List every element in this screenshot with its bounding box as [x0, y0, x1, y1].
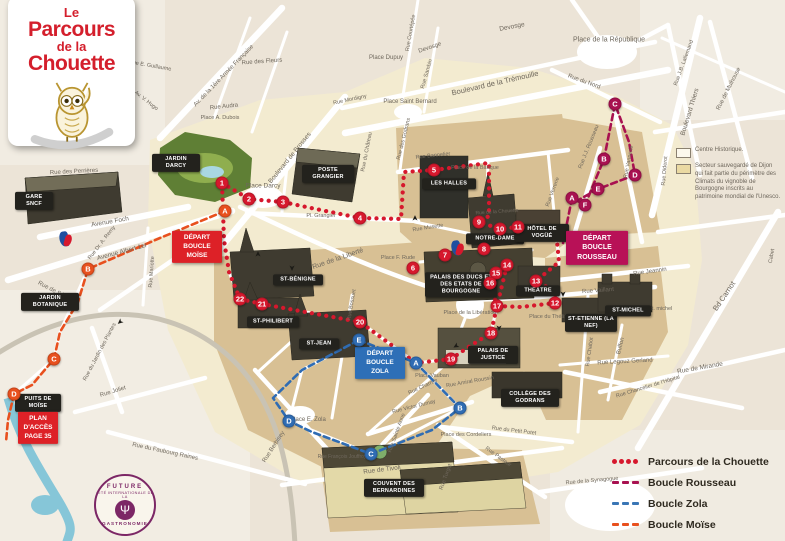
dash-sample-mark	[622, 502, 629, 505]
street-label: Av. de la 1ère Armée Française	[193, 44, 255, 108]
landmark-label: ST-ETIENNE (LA NEF)	[565, 314, 617, 332]
street-label: Rue J.J. Rousseau	[578, 124, 601, 169]
street-label: Rue du Jardin des Plantes	[82, 322, 118, 382]
gastronomie-stamp: FUTURE CITÉ INTERNATIONALE DE LA Ψ GASTR…	[94, 474, 156, 536]
street-label: Rue des Godrans	[396, 117, 412, 160]
moise-route-label: Boucle Moïse	[648, 519, 716, 531]
waypoint-chouette-22: 22	[234, 293, 247, 306]
landmark-label: LES HALLES	[422, 178, 476, 189]
waypoint-chouette-3: 3	[277, 196, 290, 209]
dash-sample-mark	[632, 502, 639, 505]
waypoint-rousseau-F: F	[579, 199, 592, 212]
street-label: Cabet	[768, 248, 776, 264]
zola-route-label: Boucle Zola	[648, 498, 708, 510]
street-label: Rue du Faubourg Raines	[132, 442, 199, 462]
route-start-box: Plan d'accès page 35	[18, 412, 58, 444]
waypoint-chouette-12: 12	[549, 297, 562, 310]
street-label: Rue François Jouffroy	[318, 454, 367, 460]
street-label: Rue de Mulhouse	[716, 67, 743, 112]
landmark-label: POSTE GRANGIER	[302, 165, 354, 183]
street-label: Rue des Perrières	[50, 168, 99, 177]
dot-sample-mark	[626, 459, 631, 464]
street-label: Rue de la Liberté	[312, 247, 365, 271]
street-label: Rue Mariotte	[148, 256, 156, 288]
street-label: Boulevard Thiers	[679, 88, 700, 137]
street-label: Devosge	[418, 41, 442, 54]
route-start-box: DÉPART BOUCLE MOÏSE	[172, 231, 222, 263]
waypoint-chouette-20: 20	[354, 316, 367, 329]
street-label: Buffon	[616, 337, 626, 355]
landmark-label: COUVENT DES BERNARDINES	[364, 479, 424, 497]
dash-sample-mark	[632, 481, 639, 484]
waypoint-chouette-8: 8	[478, 243, 491, 256]
legend-boucle-moise: Boucle Moïse	[612, 514, 769, 535]
landmark-label: PUITS DE MOÏSE	[15, 394, 61, 412]
waypoint-chouette-1: 1	[216, 177, 229, 190]
street-label: Rue Berbisey	[262, 430, 287, 463]
street-label: Rue Courtépée	[405, 14, 417, 52]
secteur-sauvegarde-label: Secteur sauvegardé de Dijon qui fait par…	[695, 163, 782, 202]
street-label: Pl. Grangier	[306, 213, 335, 219]
street-label: Bd Carnot	[711, 279, 737, 312]
direction-arrow-icon: ➤	[411, 215, 420, 222]
waypoint-chouette-4: 4	[354, 212, 367, 225]
street-label: Rue Audra	[210, 103, 239, 112]
waypoint-chouette-10: 10	[494, 223, 507, 236]
street-label: Devosge	[499, 21, 526, 33]
centre-historique-swatch	[676, 148, 691, 158]
landmark-label: PALAIS DE JUSTICE	[468, 346, 518, 364]
street-label: Rue Jeannin	[633, 267, 667, 278]
street-label: Rue des Fleurs	[241, 58, 282, 67]
street-label: Rue Pasteur	[484, 446, 512, 469]
street-label: Rue Charrue	[407, 378, 438, 397]
street-label: Rue Bannelier	[415, 151, 450, 161]
waypoint-chouette-7: 7	[439, 249, 452, 262]
waypoint-chouette-14: 14	[501, 259, 514, 272]
waypoint-zola-C: C	[365, 448, 378, 461]
logo-title: Le Parcours de la Chouette	[8, 0, 135, 75]
street-label: Rue Legouz Gerland	[597, 358, 653, 367]
dot-sample-mark	[619, 459, 624, 464]
route-start-box: DÉPART BOUCLE ZOLA	[355, 347, 405, 379]
waypoint-chouette-2: 2	[243, 193, 256, 206]
waypoint-zola-E: E	[353, 334, 366, 347]
dot-sample-mark	[612, 459, 617, 464]
zola-route-sample	[612, 502, 642, 505]
waypoint-moise-D: D	[8, 388, 21, 401]
street-label: Rue Verrerie	[545, 176, 561, 207]
waypoint-chouette-21: 21	[256, 298, 269, 311]
routes-legend: Parcours de la Chouette Boucle Rousseau …	[612, 451, 769, 535]
street-label: Rue Turgot	[439, 463, 454, 491]
street-label: Rue Mordigny	[333, 94, 368, 107]
owl-illustration	[18, 77, 126, 156]
waypoint-chouette-18: 18	[485, 327, 498, 340]
stamp-ring-text: CITÉ INTERNATIONALE DE LA	[96, 491, 154, 499]
legend-boucle-zola: Boucle Zola	[612, 493, 769, 514]
landmark-label: ST-PHILIBERT	[247, 316, 299, 327]
street-label: Place Dupuy	[369, 55, 403, 61]
tourist-office-icon	[60, 232, 73, 249]
street-label: Rue Vaillant	[582, 287, 614, 295]
street-label: Place de la Banque	[451, 165, 499, 171]
street-label: Place Saint Bernard	[383, 99, 436, 105]
waypoint-chouette-6: 6	[407, 262, 420, 275]
waypoint-chouette-13: 13	[530, 275, 543, 288]
waypoint-chouette-9: 9	[473, 216, 486, 229]
legend-secteur-sauvegarde: Secteur sauvegardé de Dijon qui fait par…	[676, 163, 782, 202]
dot-sample-mark	[633, 459, 638, 464]
fork-icon: Ψ	[115, 500, 135, 520]
street-label: Rue Victor Dumay	[392, 399, 437, 416]
direction-arrow-icon: ➤	[288, 265, 297, 272]
dijon-owl-trail-map: Av. de la 1ère Armée FrançaiseBoulevard …	[0, 0, 785, 541]
waypoint-moise-A: A	[219, 205, 232, 218]
waypoint-rousseau-C: C	[609, 98, 622, 111]
street-label: Boulevard de la Trémouille	[451, 69, 540, 98]
stamp-top-text: FUTURE	[107, 484, 143, 490]
legend-boucle-rousseau: Boucle Rousseau	[612, 472, 769, 493]
waypoint-chouette-11: 11	[512, 221, 525, 234]
legend-centre-historique: Centre Historique.	[676, 147, 782, 158]
landmark-label: ST-BÉNIGNE	[273, 274, 323, 285]
landmark-label: ST-JEAN	[299, 338, 339, 349]
dash-sample-mark	[622, 523, 629, 526]
rousseau-route-label: Boucle Rousseau	[648, 477, 736, 489]
street-label: Rue de Mirande	[677, 361, 724, 376]
street-label: Place de la République	[573, 37, 645, 44]
street-label: Rue Amiral Roussin	[446, 375, 495, 389]
street-label: Rue de la Synagogue	[565, 476, 618, 487]
direction-arrow-icon: ➤	[254, 251, 263, 258]
street-label: Rue Musette	[412, 223, 444, 234]
landmark-label: JARDIN BOTANIQUE	[21, 293, 79, 311]
waypoint-rousseau-A: A	[566, 192, 579, 205]
dash-sample-mark	[612, 523, 619, 526]
street-label: Rue du Nord	[567, 73, 601, 90]
secteur-sauvegarde-swatch	[676, 164, 691, 174]
direction-arrow-icon: ➤	[451, 340, 461, 351]
logo-line-chouette: Chouette	[8, 53, 135, 74]
waypoint-zola-D: D	[283, 415, 296, 428]
waypoint-zola-B: B	[454, 402, 467, 415]
chouette-route-label: Parcours de la Chouette	[648, 456, 769, 468]
street-label: Place F. Rude	[381, 255, 415, 261]
street-label: Rue du Château	[360, 132, 374, 172]
stamp-bottom-text: GASTRONOMIE	[102, 521, 148, 526]
route-start-box: DÉPART BOUCLE ROUSSEAU	[566, 231, 628, 265]
dash-sample-mark	[622, 481, 629, 484]
moise-route-sample	[612, 523, 642, 526]
street-label: Place Darcy	[245, 183, 280, 190]
street-label: Place Vauban	[415, 373, 449, 379]
waypoint-rousseau-D: D	[629, 169, 642, 182]
street-label: Rue Chabot	[585, 337, 595, 367]
street-label: Place de la Libération	[444, 310, 497, 316]
street-label: Rue Joliet	[99, 385, 126, 399]
street-label: Rue J.B. Lallemand	[673, 39, 695, 86]
tourist-office-icon	[452, 241, 465, 258]
waypoint-chouette-17: 17	[491, 300, 504, 313]
centre-historique-label: Centre Historique.	[695, 147, 743, 155]
dash-sample-mark	[612, 502, 619, 505]
waypoint-zola-A: A	[410, 357, 423, 370]
street-label: Rue Sainte Anne	[387, 413, 407, 454]
street-label: Rue du Petit Potet	[491, 425, 536, 436]
landmark-label: ST-MICHEL	[605, 305, 651, 316]
waypoint-moise-C: C	[48, 353, 61, 366]
street-label: Rue de Tivoli	[363, 464, 401, 476]
landmark-label: GARE SNCF	[15, 192, 53, 210]
dash-sample-mark	[632, 523, 639, 526]
street-label: Place E. Zola	[290, 417, 326, 423]
rousseau-route-sample	[612, 481, 642, 484]
zones-legend: Centre Historique. Secteur sauvegardé de…	[676, 147, 782, 207]
direction-arrow-icon: ➤	[559, 291, 568, 298]
logo-line-parcours: Parcours	[8, 19, 135, 40]
street-label: Place A. Dubois	[201, 115, 240, 121]
legend-parcours-chouette: Parcours de la Chouette	[612, 451, 769, 472]
waypoint-rousseau-E: E	[592, 183, 605, 196]
street-label: Place des Cordeliers	[441, 432, 492, 438]
waypoint-moise-B: B	[82, 263, 95, 276]
street-label: Av. V. Hugo	[133, 90, 159, 112]
chouette-route-sample	[612, 459, 642, 464]
waypoint-chouette-5: 5	[428, 164, 441, 177]
street-label: Rue Chancelier de l'Hôpital	[615, 374, 680, 399]
street-label: Rue Diderot	[661, 156, 670, 186]
logo-card: Le Parcours de la Chouette	[8, 0, 135, 146]
waypoint-chouette-16: 16	[484, 277, 497, 290]
waypoint-chouette-19: 19	[445, 353, 458, 366]
landmark-label: JARDIN DARCY	[152, 154, 200, 172]
landmark-label: COLLÈGE DES GODRANS	[501, 389, 559, 407]
dash-sample-mark	[612, 481, 619, 484]
waypoint-rousseau-B: B	[598, 153, 611, 166]
street-label: Rue Sambin	[420, 59, 434, 90]
